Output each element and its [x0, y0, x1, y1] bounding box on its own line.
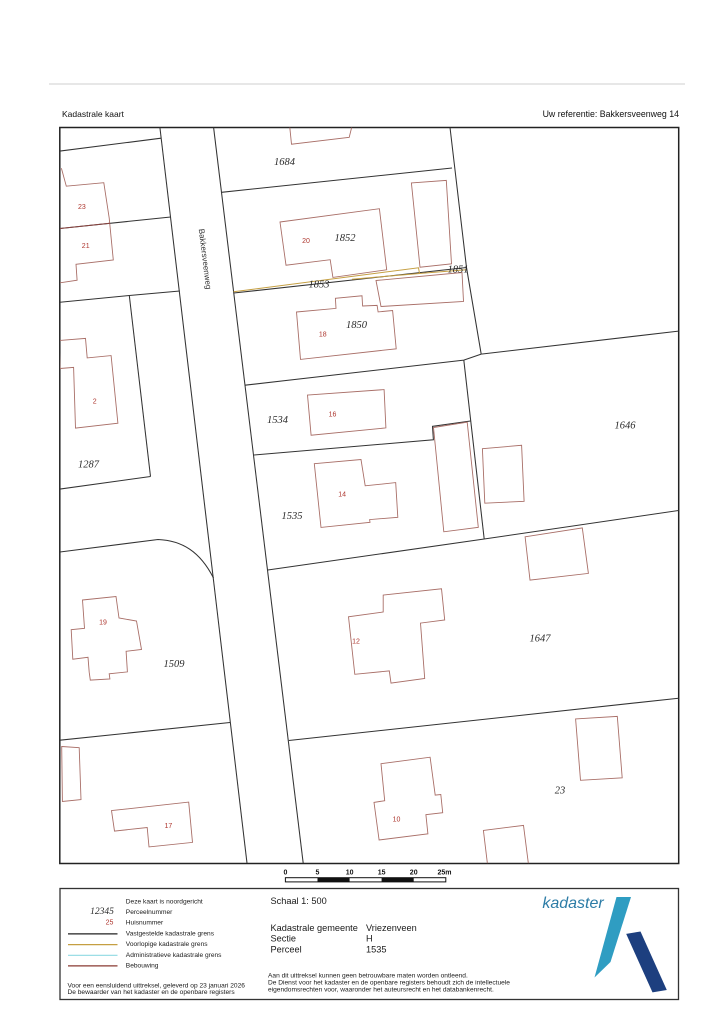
svg-text:1534: 1534 [267, 415, 289, 426]
svg-text:Uw referentie: Bakkersveenweg: Uw referentie: Bakkersveenweg 14 [543, 109, 680, 119]
svg-text:Kadastrale gemeente: Kadastrale gemeente [271, 923, 358, 933]
svg-text:Schaal 1: 500: Schaal 1: 500 [271, 896, 327, 906]
svg-text:10: 10 [393, 817, 401, 824]
svg-text:Vriezenveen: Vriezenveen [366, 923, 417, 933]
svg-text:23: 23 [78, 204, 86, 211]
svg-text:20: 20 [410, 870, 418, 877]
svg-text:16: 16 [329, 412, 337, 419]
svg-text:1287: 1287 [78, 460, 100, 471]
svg-text:Perceelnummer: Perceelnummer [126, 909, 173, 916]
svg-text:kadaster: kadaster [542, 895, 604, 912]
svg-text:25m: 25m [437, 870, 451, 877]
svg-text:Perceel: Perceel [271, 944, 302, 954]
svg-text:15: 15 [378, 870, 386, 877]
svg-text:De Dienst voor het kadaster en: De Dienst voor het kadaster en de openba… [268, 980, 510, 987]
svg-text:20: 20 [302, 238, 310, 245]
svg-text:5: 5 [316, 870, 320, 877]
svg-text:1851: 1851 [448, 265, 469, 276]
svg-text:1646: 1646 [615, 420, 637, 431]
svg-text:H: H [366, 934, 373, 944]
svg-text:Deze kaart is noordgericht: Deze kaart is noordgericht [126, 898, 203, 905]
svg-text:Bakkersveenweg: Bakkersveenweg [197, 228, 213, 290]
svg-text:1509: 1509 [164, 659, 186, 670]
svg-text:23: 23 [555, 786, 566, 797]
svg-text:Bebouwing: Bebouwing [126, 963, 159, 970]
svg-text:1853: 1853 [309, 280, 330, 291]
svg-text:0: 0 [283, 870, 287, 877]
svg-text:25: 25 [106, 920, 114, 927]
svg-text:1684: 1684 [274, 157, 296, 168]
svg-text:Kadastrale kaart: Kadastrale kaart [62, 109, 125, 119]
svg-text:12345: 12345 [90, 907, 114, 917]
svg-text:Vastgestelde kadastrale grens: Vastgestelde kadastrale grens [126, 930, 215, 937]
svg-text:1852: 1852 [335, 233, 357, 244]
svg-text:De bewaarder van het kadaster: De bewaarder van het kadaster en de open… [68, 989, 236, 996]
svg-text:1647: 1647 [530, 634, 552, 645]
svg-text:Administratieve kadastrale gre: Administratieve kadastrale grens [126, 952, 222, 959]
svg-text:1535: 1535 [282, 511, 303, 522]
svg-text:19: 19 [99, 620, 107, 627]
svg-text:10: 10 [346, 870, 354, 877]
svg-text:18: 18 [319, 332, 327, 339]
svg-text:17: 17 [165, 823, 173, 830]
svg-text:Aan dit uittreksel kunnen geen: Aan dit uittreksel kunnen geen betrouwba… [268, 973, 468, 980]
svg-text:12: 12 [352, 639, 360, 646]
svg-text:Huisnummer: Huisnummer [126, 920, 164, 927]
svg-text:eigendomsrechten voor, waarond: eigendomsrechten voor, waaronder het aut… [268, 987, 494, 994]
svg-text:1535: 1535 [366, 944, 386, 954]
svg-text:2: 2 [93, 398, 97, 405]
svg-text:Voorlopige kadastrale grens: Voorlopige kadastrale grens [126, 941, 208, 948]
svg-text:1850: 1850 [346, 320, 368, 331]
svg-text:21: 21 [82, 243, 90, 250]
svg-text:14: 14 [338, 492, 346, 499]
svg-text:Sectie: Sectie [271, 934, 297, 944]
